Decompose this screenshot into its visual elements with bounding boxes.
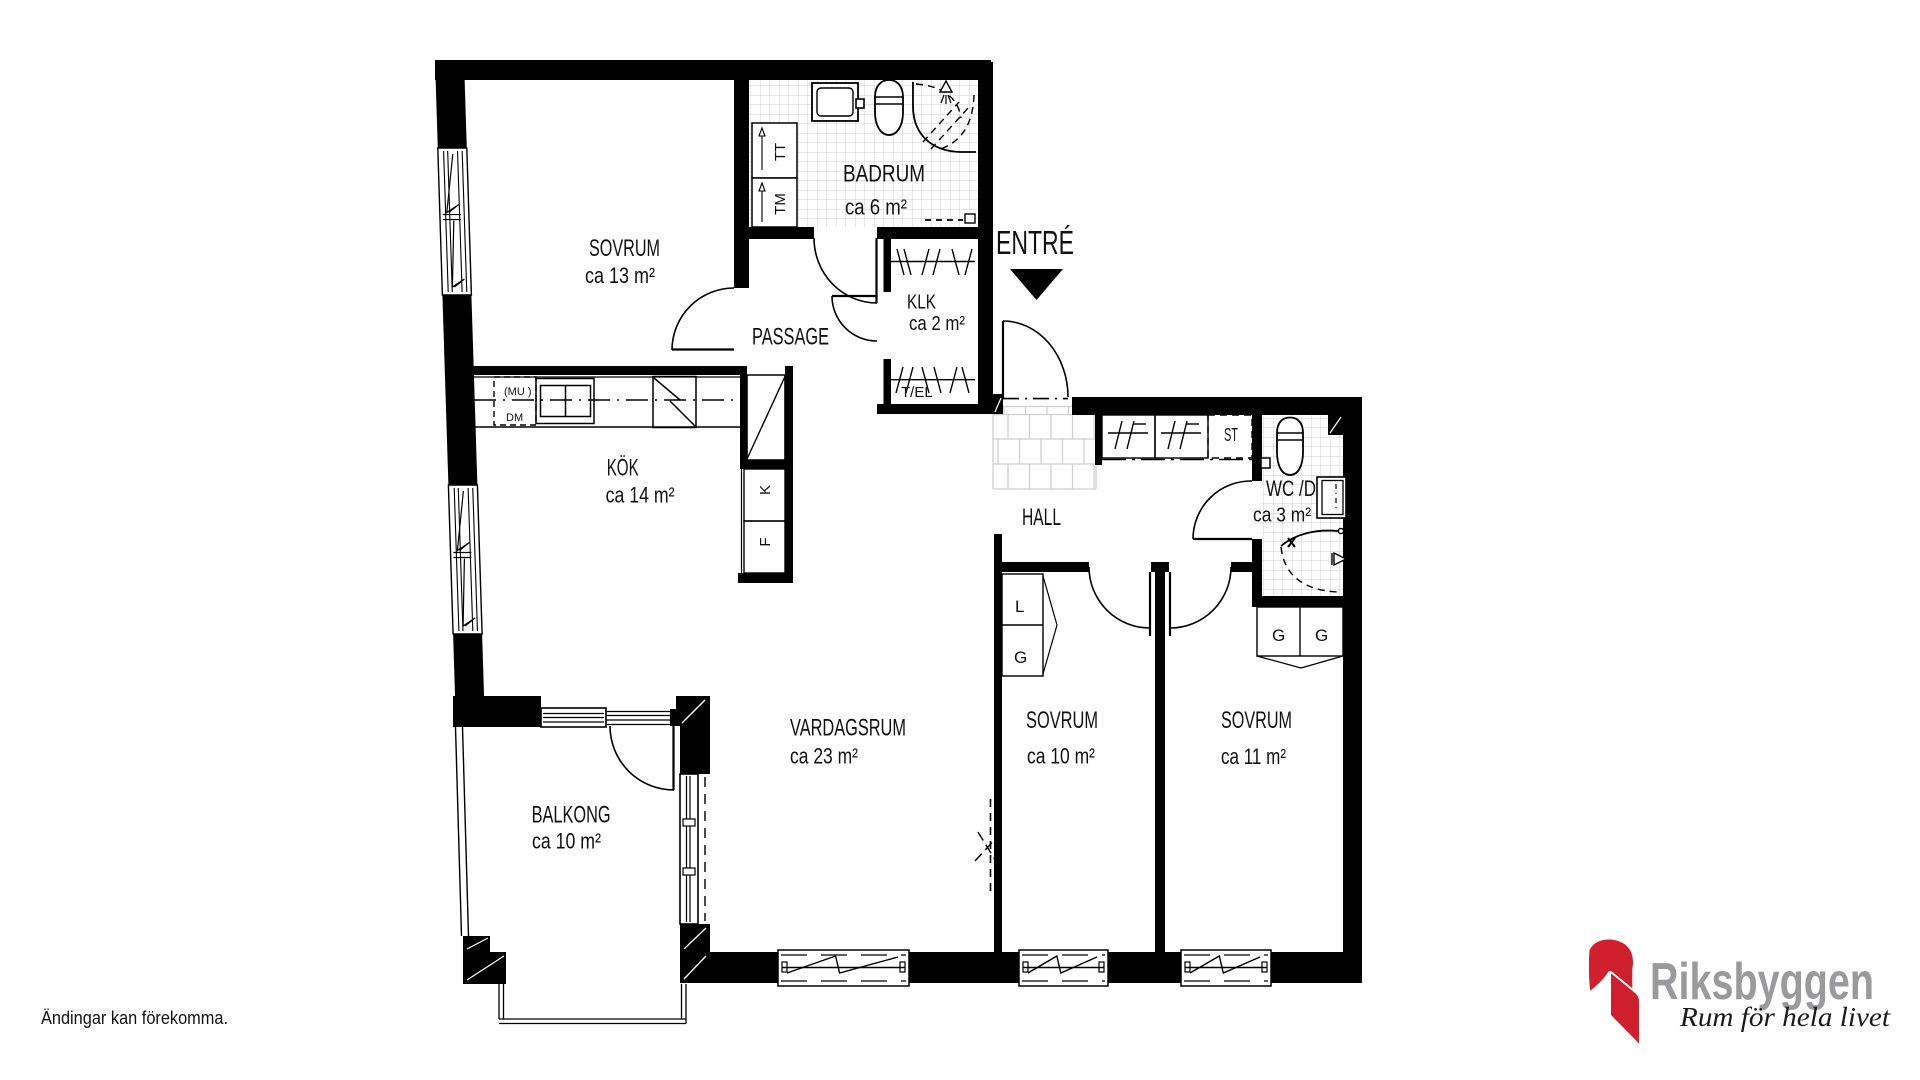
svg-text:(MU ): (MU ) bbox=[504, 386, 532, 398]
svg-text:ca 14 m²: ca 14 m² bbox=[606, 483, 675, 508]
svg-text:ca 3 m²: ca 3 m² bbox=[1253, 505, 1311, 527]
svg-text:T/EL: T/EL bbox=[901, 384, 933, 401]
svg-text:L: L bbox=[1015, 597, 1024, 616]
svg-text:G: G bbox=[1272, 626, 1285, 645]
svg-text:SOVRUM: SOVRUM bbox=[1026, 707, 1098, 734]
svg-text:ca 23 m²: ca 23 m² bbox=[790, 744, 858, 769]
svg-text:ca 10 m²: ca 10 m² bbox=[1027, 744, 1095, 769]
svg-text:SOVRUM: SOVRUM bbox=[1221, 707, 1292, 734]
svg-text:G: G bbox=[1315, 626, 1328, 645]
svg-text:F: F bbox=[757, 537, 774, 546]
svg-text:KÖK: KÖK bbox=[607, 455, 639, 482]
svg-text:ca 11 m²: ca 11 m² bbox=[1221, 744, 1286, 769]
svg-text:WC /D: WC /D bbox=[1266, 476, 1316, 501]
svg-text:ENTRÉ: ENTRÉ bbox=[996, 224, 1074, 261]
svg-text:Ändingar kan förekomma.: Ändingar kan förekomma. bbox=[41, 1008, 228, 1028]
svg-text:HALL: HALL bbox=[1022, 504, 1061, 531]
svg-text:KLK: KLK bbox=[907, 292, 936, 314]
svg-text:TM: TM bbox=[772, 193, 789, 215]
svg-text:VARDAGSRUM: VARDAGSRUM bbox=[790, 715, 906, 742]
svg-text:G: G bbox=[1014, 648, 1027, 667]
svg-text:DM: DM bbox=[506, 412, 523, 424]
svg-text:K: K bbox=[757, 485, 774, 495]
svg-text:PASSAGE: PASSAGE bbox=[752, 324, 829, 351]
svg-text:Rum för hela livet: Rum för hela livet bbox=[1679, 1002, 1892, 1032]
svg-text:TT: TT bbox=[772, 143, 789, 161]
svg-text:ca 6 m²: ca 6 m² bbox=[845, 195, 907, 220]
svg-text:ca 2 m²: ca 2 m² bbox=[909, 313, 965, 335]
svg-text:BALKONG: BALKONG bbox=[532, 801, 611, 828]
svg-text:ca 13 m²: ca 13 m² bbox=[585, 263, 655, 288]
svg-text:BADRUM: BADRUM bbox=[843, 161, 925, 188]
svg-text:ca 10 m²: ca 10 m² bbox=[532, 829, 601, 854]
svg-text:SOVRUM: SOVRUM bbox=[589, 235, 660, 262]
svg-text:ST: ST bbox=[1224, 425, 1238, 445]
